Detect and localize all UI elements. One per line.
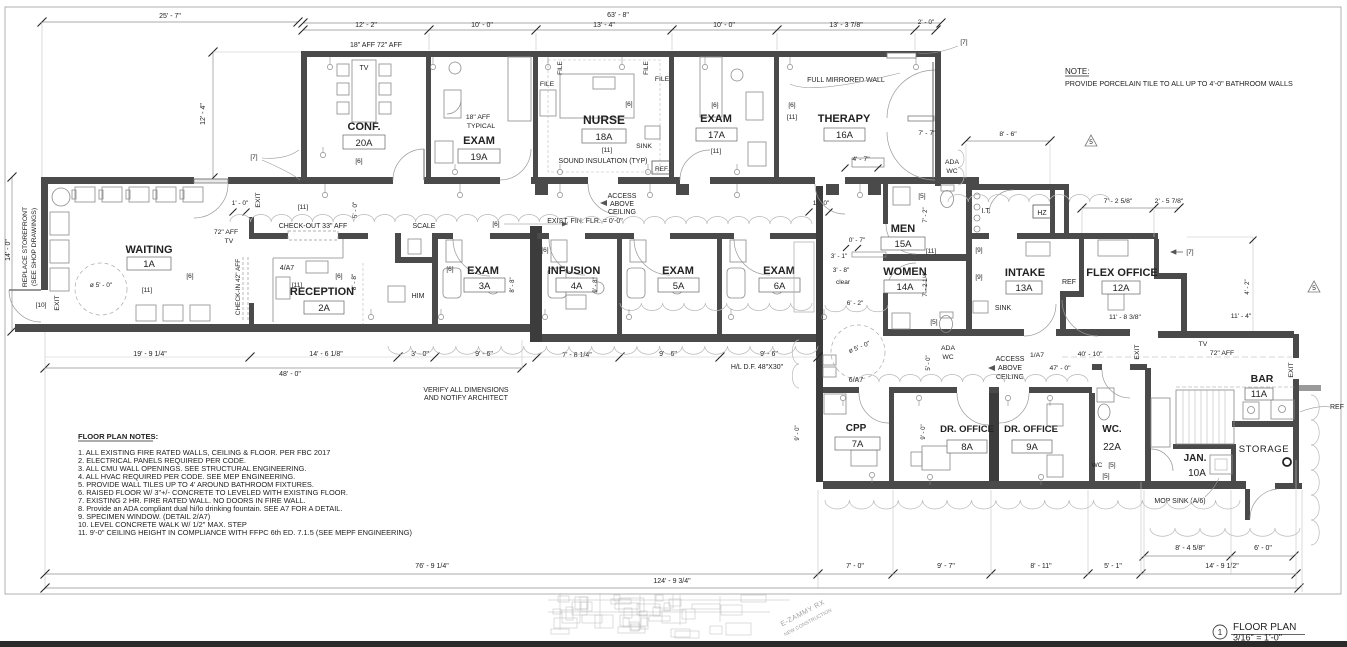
svg-text:5A: 5A [673, 281, 685, 292]
svg-text:124' - 9 3/4": 124' - 9 3/4" [653, 578, 691, 585]
svg-text:SINK: SINK [995, 305, 1012, 312]
svg-text:5: 5 [1312, 285, 1316, 292]
svg-text:2A: 2A [318, 303, 330, 314]
svg-text:8' - 11": 8' - 11" [1030, 563, 1052, 570]
svg-text:3A: 3A [479, 281, 491, 292]
svg-text:15A: 15A [895, 239, 913, 250]
svg-text:5: 5 [1089, 139, 1093, 146]
svg-text:76' - 9 1/4": 76' - 9 1/4" [415, 563, 449, 570]
svg-text:6' - 2": 6' - 2" [847, 300, 864, 307]
svg-text:TV: TV [1199, 341, 1208, 348]
svg-text:25' - 7": 25' - 7" [159, 13, 181, 20]
svg-text:14' - 0": 14' - 0" [5, 239, 12, 261]
svg-text:13' - 3 7/8": 13' - 3 7/8" [829, 22, 863, 29]
svg-text:14' - 9 1/2": 14' - 9 1/2" [1205, 563, 1239, 570]
svg-text:WOMEN: WOMEN [883, 266, 926, 278]
svg-text:[5]: [5] [1108, 462, 1115, 469]
svg-text:1: 1 [1218, 628, 1223, 637]
svg-text:10' - 0": 10' - 0" [471, 22, 493, 29]
svg-text:2' - 0": 2' - 0" [918, 19, 935, 26]
svg-text:7' - 2 1/4": 7' - 2 1/4" [923, 271, 929, 296]
svg-text:MEN: MEN [891, 223, 916, 235]
svg-text:SINK: SINK [636, 143, 652, 150]
svg-text:[11]: [11] [711, 148, 722, 155]
svg-text:[6]: [6] [541, 247, 548, 254]
svg-text:7' - 7": 7' - 7" [918, 130, 936, 137]
svg-text:11A: 11A [1251, 389, 1268, 400]
svg-text:[11]: [11] [298, 204, 309, 211]
svg-text:[11]: [11] [926, 248, 937, 255]
svg-text:0' - 7": 0' - 7" [849, 237, 866, 244]
svg-text:[6]: [6] [788, 102, 795, 109]
svg-text:11' - 8 3/8": 11' - 8 3/8" [1109, 314, 1142, 321]
svg-text:WC: WC [1092, 462, 1103, 469]
svg-text:13' - 4": 13' - 4" [593, 22, 615, 29]
svg-text:AND NOTIFY ARCHITECT: AND NOTIFY ARCHITECT [424, 395, 509, 402]
svg-text:18A: 18A [596, 132, 614, 143]
svg-text:HZ: HZ [1037, 210, 1047, 217]
svg-text:WAITING: WAITING [125, 244, 172, 256]
svg-text:9' - 7": 9' - 7" [937, 563, 955, 570]
svg-text:2' - 5 7/8": 2' - 5 7/8" [1155, 198, 1184, 205]
svg-text:THERAPY: THERAPY [818, 113, 871, 125]
svg-text:1/A7: 1/A7 [1030, 352, 1044, 359]
svg-text:WC: WC [942, 354, 953, 361]
svg-text:clear: clear [836, 279, 851, 286]
svg-text:18" AFF: 18" AFF [466, 114, 490, 121]
svg-text:ADA: ADA [941, 345, 955, 352]
svg-text:[7]: [7] [1186, 249, 1193, 256]
svg-text:H/L D.F. 48"X30": H/L D.F. 48"X30" [731, 364, 784, 371]
svg-text:6/A7: 6/A7 [849, 377, 864, 384]
svg-text:[6]: [6] [446, 266, 453, 273]
svg-text:3' - 8": 3' - 8" [833, 267, 850, 274]
svg-text:FILE: FILE [557, 60, 564, 74]
svg-text:10A: 10A [1188, 468, 1206, 479]
svg-text:[7]: [7] [960, 39, 967, 46]
svg-text:SOUND INSULATION (TYP): SOUND INSULATION (TYP) [559, 158, 648, 165]
svg-text:DR. OFFICE: DR. OFFICE [940, 424, 994, 435]
svg-text:CEILING: CEILING [608, 209, 636, 216]
svg-text:WC.: WC. [1102, 424, 1122, 435]
svg-text:47' - 0": 47' - 0" [1049, 365, 1071, 372]
svg-text:8A: 8A [961, 442, 973, 453]
svg-text:3' - 1": 3' - 1" [831, 253, 848, 260]
svg-text:[6]: [6] [335, 273, 342, 280]
svg-text:13A: 13A [1016, 283, 1034, 294]
svg-text:(SEE SHOP DRAWINGS): (SEE SHOP DRAWINGS) [31, 208, 38, 286]
svg-text:ACCESS: ACCESS [608, 193, 637, 200]
svg-text:[5]: [5] [918, 193, 925, 200]
svg-text:CHECK-OUT 33" AFF: CHECK-OUT 33" AFF [279, 223, 347, 230]
svg-text:11. 9'-0" CEILING HEIGHT IN CO: 11. 9'-0" CEILING HEIGHT IN COMPLIANCE W… [78, 528, 412, 537]
svg-text:7A: 7A [852, 439, 864, 450]
svg-text:BAR: BAR [1251, 373, 1274, 385]
svg-text:[11]: [11] [142, 287, 153, 294]
svg-text:[11]: [11] [602, 147, 613, 154]
svg-text:[9]: [9] [975, 274, 982, 281]
svg-text:EXAM: EXAM [763, 265, 795, 277]
svg-text:4/A7: 4/A7 [280, 265, 295, 272]
svg-text:TV: TV [225, 238, 234, 245]
svg-text:1A: 1A [143, 259, 155, 270]
svg-text:5' - 0": 5' - 0" [926, 355, 932, 370]
svg-text:ACCESS: ACCESS [996, 356, 1025, 363]
svg-text:ADA: ADA [945, 159, 959, 166]
svg-text:1' - 0": 1' - 0" [232, 200, 249, 207]
svg-text:22A: 22A [1103, 442, 1121, 453]
svg-text:I.T.: I.T. [981, 208, 990, 215]
svg-text:RECEPTION: RECEPTION [290, 286, 354, 298]
svg-text:CPP: CPP [846, 423, 867, 434]
svg-text:FILE: FILE [643, 60, 650, 74]
svg-text:12' - 4": 12' - 4" [200, 103, 207, 125]
svg-text:EXAM: EXAM [662, 265, 694, 277]
svg-text:7' - 2 5/8": 7' - 2 5/8" [1104, 198, 1133, 205]
svg-text:NOTE:: NOTE: [1065, 67, 1089, 76]
svg-text:11' - 4": 11' - 4" [1231, 313, 1252, 320]
svg-text:3/16" = 1'-0": 3/16" = 1'-0" [1233, 633, 1282, 643]
svg-text:9A: 9A [1026, 442, 1038, 453]
svg-text:HIM: HIM [412, 293, 425, 300]
svg-text:EXIT: EXIT [1288, 362, 1295, 377]
svg-text:7' - 8 1/4": 7' - 8 1/4" [562, 352, 592, 359]
svg-text:14A: 14A [897, 282, 915, 293]
svg-text:EXIT: EXIT [255, 192, 262, 207]
svg-text:DR. OFFICE: DR. OFFICE [1004, 424, 1058, 435]
svg-text:4A: 4A [571, 281, 583, 292]
svg-text:[5]: [5] [1102, 473, 1109, 480]
svg-text:EXAM: EXAM [467, 265, 499, 277]
svg-text:CHECK-IN 42" AFF: CHECK-IN 42" AFF [235, 259, 242, 316]
svg-text:6' - 0": 6' - 0" [1254, 545, 1272, 552]
svg-text:1' - 0": 1' - 0" [813, 200, 830, 207]
svg-text:FLEX OFFICE: FLEX OFFICE [1086, 267, 1158, 279]
svg-text:17A: 17A [708, 130, 726, 141]
svg-text:9' - 0": 9' - 0" [795, 425, 801, 440]
svg-text:EXAM: EXAM [463, 135, 495, 147]
svg-text:[6]: [6] [186, 273, 193, 280]
svg-text:18" AFF 72" AFF: 18" AFF 72" AFF [350, 42, 402, 49]
svg-text:4' - 7": 4' - 7" [852, 156, 870, 163]
svg-text:TV: TV [360, 65, 369, 72]
svg-text:72" AFF: 72" AFF [1210, 350, 1234, 357]
svg-text:FILE: FILE [540, 81, 555, 88]
svg-text:CONF.: CONF. [348, 121, 381, 133]
svg-text:ABOVE: ABOVE [998, 365, 1022, 372]
svg-text:4' - 2": 4' - 2" [1245, 279, 1251, 294]
svg-text:PROVIDE PORCELAIN TILE TO ALL: PROVIDE PORCELAIN TILE TO ALL UP TO 4'-0… [1065, 79, 1293, 88]
svg-text:REF.: REF. [655, 166, 669, 173]
svg-text:[6]: [6] [492, 221, 499, 228]
svg-text:REF: REF [1062, 279, 1076, 286]
svg-text:FLOOR PLAN NOTES:: FLOOR PLAN NOTES: [78, 432, 158, 441]
svg-text:[9]: [9] [975, 247, 982, 254]
svg-text:[5]: [5] [930, 319, 937, 326]
svg-text:72" AFF: 72" AFF [214, 229, 238, 236]
svg-text:TYPICAL: TYPICAL [467, 123, 496, 130]
svg-text:WC: WC [946, 168, 957, 175]
svg-text:12' - 2": 12' - 2" [355, 22, 377, 29]
svg-text:[11]: [11] [787, 114, 798, 121]
svg-text:STORAGE: STORAGE [1239, 444, 1289, 455]
svg-text:[6]: [6] [711, 102, 718, 109]
svg-text:FLOOR PLAN: FLOOR PLAN [1233, 622, 1296, 633]
svg-text:VERIFY ALL DIMENSIONS: VERIFY ALL DIMENSIONS [423, 387, 509, 394]
svg-text:19A: 19A [471, 152, 489, 163]
svg-text:ø 5' - 0": ø 5' - 0" [90, 282, 113, 289]
svg-text:[6]: [6] [355, 158, 362, 165]
svg-text:EXIT: EXIT [1134, 344, 1141, 359]
svg-text:20A: 20A [356, 138, 374, 149]
svg-text:FILE: FILE [655, 76, 670, 83]
svg-text:8' - 8": 8' - 8" [510, 277, 516, 292]
svg-text:JAN.: JAN. [1184, 453, 1207, 464]
svg-text:INTAKE: INTAKE [1005, 267, 1045, 279]
svg-text:INFUSION: INFUSION [548, 265, 601, 277]
svg-text:7' - 0": 7' - 0" [846, 563, 864, 570]
svg-text:ABOVE: ABOVE [610, 201, 634, 208]
svg-text:16A: 16A [836, 130, 854, 141]
svg-text:EXIT: EXIT [54, 295, 61, 310]
svg-text:63' - 8": 63' - 8" [607, 12, 629, 19]
svg-text:[7]: [7] [250, 154, 257, 161]
svg-text:7' - 2": 7' - 2" [923, 207, 929, 222]
svg-text:6A: 6A [774, 281, 786, 292]
svg-text:48' - 0": 48' - 0" [279, 371, 301, 378]
svg-text:8' - 6": 8' - 6" [999, 131, 1017, 138]
svg-text:NURSE: NURSE [583, 113, 625, 127]
svg-text:[6]: [6] [625, 101, 632, 108]
svg-text:9' - 8": 9' - 8" [593, 277, 599, 292]
svg-text:EXAM: EXAM [700, 113, 732, 125]
svg-text:9' - 0": 9' - 0" [921, 424, 927, 439]
svg-text:5' - 1": 5' - 1" [1104, 563, 1122, 570]
svg-text:REF: REF [1330, 404, 1344, 411]
svg-text:MOP SINK (A/6): MOP SINK (A/6) [1154, 498, 1205, 505]
svg-text:REPLACE STOREFRONT: REPLACE STOREFRONT [22, 207, 29, 287]
svg-text:10' - 0": 10' - 0" [713, 22, 735, 29]
svg-text:12A: 12A [1113, 283, 1131, 294]
svg-text:8' - 8": 8' - 8" [351, 273, 358, 290]
svg-text:FULL MIRRORED WALL: FULL MIRRORED WALL [807, 77, 885, 84]
svg-text:8' - 4 5/8": 8' - 4 5/8" [1175, 545, 1205, 552]
svg-text:[10]: [10] [36, 302, 47, 309]
svg-text:SCALE: SCALE [413, 223, 436, 230]
